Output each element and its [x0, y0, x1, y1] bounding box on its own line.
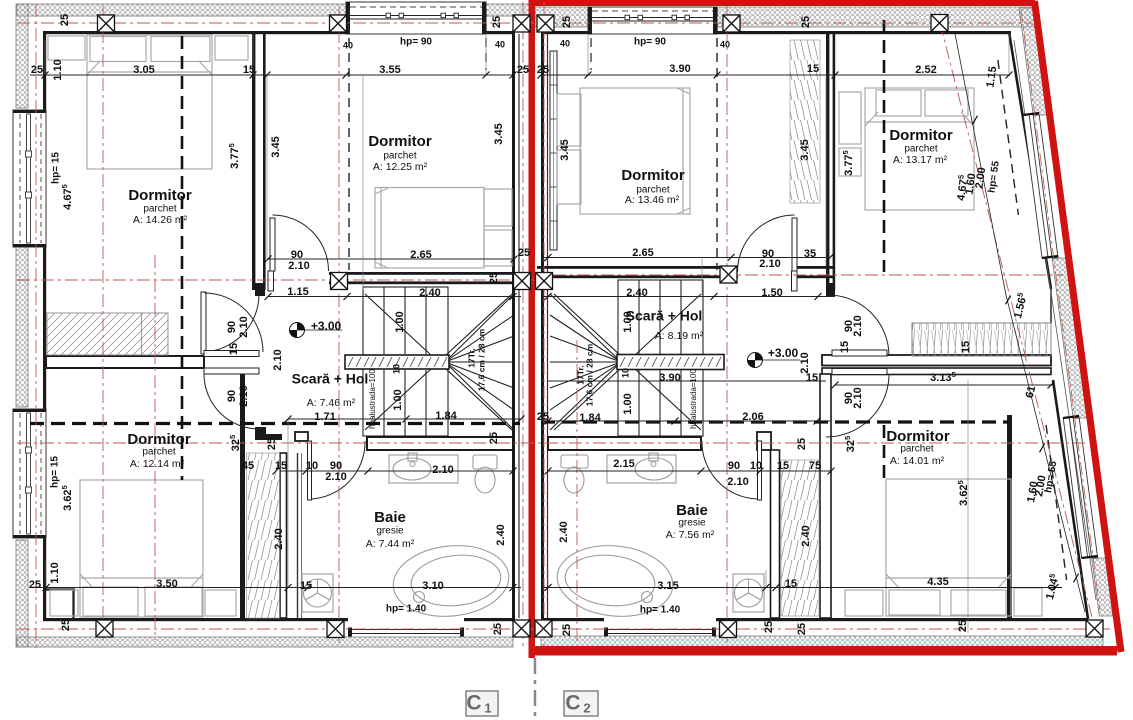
svg-text:2.10: 2.10: [852, 387, 864, 408]
svg-text:15: 15: [300, 580, 312, 592]
svg-text:A: 12.25 m²: A: 12.25 m²: [373, 161, 428, 173]
svg-text:1.00: 1.00: [622, 311, 634, 332]
svg-text:2.65: 2.65: [632, 247, 653, 259]
svg-text:15: 15: [785, 578, 797, 590]
svg-text:hbalustrada=100: hbalustrada=100: [689, 369, 698, 429]
svg-text:25: 25: [800, 16, 812, 28]
svg-text:Scară + Hol: Scară + Hol: [292, 371, 369, 387]
svg-text:A: 14.01 m²: A: 14.01 m²: [890, 455, 945, 467]
svg-text:25: 25: [60, 619, 72, 631]
svg-text:4.35: 4.35: [927, 576, 948, 588]
svg-text:Scară + Hol: Scară + Hol: [626, 308, 703, 324]
svg-text:hp= 90: hp= 90: [634, 37, 666, 48]
svg-text:2.40: 2.40: [558, 521, 570, 542]
svg-text:2.10: 2.10: [288, 260, 309, 272]
svg-text:25: 25: [266, 438, 278, 450]
svg-text:25: 25: [537, 64, 549, 76]
svg-text:35: 35: [804, 248, 816, 260]
svg-text:2.15: 2.15: [613, 458, 634, 470]
svg-text:25: 25: [561, 16, 573, 28]
svg-text:40: 40: [560, 38, 570, 48]
svg-text:1.84: 1.84: [435, 410, 457, 422]
svg-text:A: 12.14 m²: A: 12.14 m²: [130, 458, 185, 470]
svg-text:17Tr.: 17Tr.: [466, 348, 476, 367]
svg-text:A: 7.56 m²: A: 7.56 m²: [666, 529, 715, 541]
svg-text:17.6 cm / 28 cm: 17.6 cm / 28 cm: [476, 328, 486, 391]
svg-text:17.6 cm / 28 cm: 17.6 cm / 28 cm: [584, 343, 594, 406]
svg-text:3.45: 3.45: [799, 139, 811, 160]
svg-text:2.40: 2.40: [495, 524, 507, 545]
svg-text:25: 25: [537, 411, 549, 423]
svg-text:2.06: 2.06: [742, 411, 763, 423]
svg-text:Dormitor: Dormitor: [127, 431, 190, 448]
svg-text:15: 15: [806, 372, 818, 384]
svg-text:2.10: 2.10: [238, 385, 250, 406]
svg-text:1.00: 1.00: [622, 393, 634, 414]
svg-text:2.65: 2.65: [410, 249, 431, 261]
svg-text:+3.00: +3.00: [311, 319, 342, 333]
svg-text:40: 40: [495, 39, 505, 49]
svg-text:3.55: 3.55: [379, 64, 400, 76]
svg-text:2.10: 2.10: [432, 464, 453, 476]
svg-text:10: 10: [306, 460, 318, 472]
svg-text:hp= 15: hp= 15: [51, 152, 62, 184]
svg-text:1.15: 1.15: [287, 286, 308, 298]
svg-text:2.10: 2.10: [799, 352, 811, 373]
svg-text:3.05: 3.05: [133, 64, 154, 76]
svg-text:A: 14.26 m²: A: 14.26 m²: [133, 214, 188, 226]
svg-text:2.10: 2.10: [238, 316, 250, 337]
svg-text:15: 15: [243, 64, 255, 76]
svg-text:A: 8.19 m²: A: 8.19 m²: [655, 330, 704, 342]
svg-text:Baie: Baie: [676, 502, 708, 519]
svg-text:Dormitor: Dormitor: [889, 127, 952, 144]
svg-text:Baie: Baie: [374, 509, 406, 526]
svg-text:hp= 90: hp= 90: [400, 37, 432, 48]
svg-text:90: 90: [226, 321, 238, 333]
svg-text:2.10: 2.10: [852, 315, 864, 336]
svg-text:1.71: 1.71: [314, 411, 335, 423]
svg-text:25: 25: [491, 16, 503, 28]
svg-text:25: 25: [517, 64, 529, 76]
svg-text:C: C: [466, 692, 481, 715]
svg-text:2: 2: [583, 700, 590, 715]
svg-text:2.40: 2.40: [800, 525, 812, 546]
svg-text:2.10: 2.10: [272, 349, 284, 370]
svg-text:hbalustrada=100: hbalustrada=100: [368, 369, 377, 429]
svg-text:25: 25: [796, 623, 808, 635]
svg-text:hp= 1.40: hp= 1.40: [386, 604, 427, 615]
svg-text:Dormitor: Dormitor: [886, 428, 949, 445]
svg-text:3.90: 3.90: [669, 63, 690, 75]
svg-text:A: 7.44 m²: A: 7.44 m²: [366, 538, 415, 550]
svg-text:A: 13.17 m²: A: 13.17 m²: [893, 154, 948, 166]
svg-text:25: 25: [796, 438, 808, 450]
svg-text:1.10: 1.10: [49, 562, 61, 583]
svg-text:25: 25: [518, 247, 530, 259]
svg-text:25: 25: [31, 64, 43, 76]
svg-text:2.10: 2.10: [759, 258, 780, 270]
svg-text:3.15: 3.15: [657, 580, 678, 592]
svg-text:A: 7.46 m²: A: 7.46 m²: [307, 397, 356, 409]
svg-text:25: 25: [59, 14, 71, 26]
svg-text:2.10: 2.10: [727, 476, 748, 488]
svg-text:15: 15: [960, 341, 972, 353]
svg-text:C: C: [565, 692, 580, 715]
svg-text:1.50: 1.50: [761, 287, 782, 299]
svg-text:2.10: 2.10: [325, 471, 346, 483]
svg-text:A: 13.46 m²: A: 13.46 m²: [625, 194, 680, 206]
svg-text:25: 25: [488, 272, 500, 284]
svg-text:25: 25: [561, 624, 573, 636]
svg-text:1.00: 1.00: [394, 311, 406, 332]
svg-text:2.52: 2.52: [915, 64, 936, 76]
svg-text:+3.00: +3.00: [768, 346, 799, 360]
svg-text:45: 45: [242, 460, 254, 472]
svg-text:3.45: 3.45: [270, 136, 282, 157]
svg-text:75: 75: [809, 460, 821, 472]
svg-text:3.50: 3.50: [156, 578, 177, 590]
svg-text:gresie: gresie: [376, 526, 404, 537]
svg-text:15: 15: [275, 460, 287, 472]
svg-text:2.40: 2.40: [626, 287, 647, 299]
svg-text:15: 15: [807, 63, 819, 75]
svg-text:2.40: 2.40: [273, 528, 285, 549]
svg-text:1.00: 1.00: [392, 389, 404, 410]
svg-text:gresie: gresie: [678, 518, 706, 529]
svg-text:3.90: 3.90: [659, 372, 680, 384]
svg-text:25: 25: [492, 623, 504, 635]
svg-text:15: 15: [839, 341, 851, 353]
svg-text:25: 25: [488, 432, 500, 444]
svg-text:2.40: 2.40: [419, 287, 440, 299]
svg-text:25: 25: [29, 579, 41, 591]
svg-text:25: 25: [763, 621, 775, 633]
svg-text:Dormitor: Dormitor: [368, 133, 431, 150]
svg-text:parchet: parchet: [900, 444, 934, 455]
svg-text:1.10: 1.10: [52, 59, 64, 80]
svg-text:15: 15: [228, 343, 240, 355]
svg-text:1: 1: [484, 700, 491, 715]
svg-text:3.10: 3.10: [422, 580, 443, 592]
svg-text:10: 10: [620, 368, 630, 378]
svg-text:25: 25: [957, 620, 969, 632]
svg-text:hp= 1.40: hp= 1.40: [640, 605, 681, 616]
svg-text:90: 90: [728, 460, 740, 472]
svg-text:3.45: 3.45: [493, 123, 505, 144]
svg-text:hp= 15: hp= 15: [50, 456, 61, 488]
svg-text:15: 15: [777, 460, 789, 472]
svg-text:3.45: 3.45: [559, 139, 571, 160]
svg-text:10: 10: [391, 364, 401, 374]
svg-text:Dormitor: Dormitor: [621, 167, 684, 184]
svg-text:40: 40: [720, 39, 730, 49]
svg-text:parchet: parchet: [142, 447, 176, 458]
svg-text:Dormitor: Dormitor: [128, 187, 191, 204]
svg-text:10: 10: [750, 460, 762, 472]
svg-text:90: 90: [226, 390, 238, 402]
svg-text:1.84: 1.84: [579, 412, 601, 424]
svg-text:40: 40: [343, 40, 353, 50]
